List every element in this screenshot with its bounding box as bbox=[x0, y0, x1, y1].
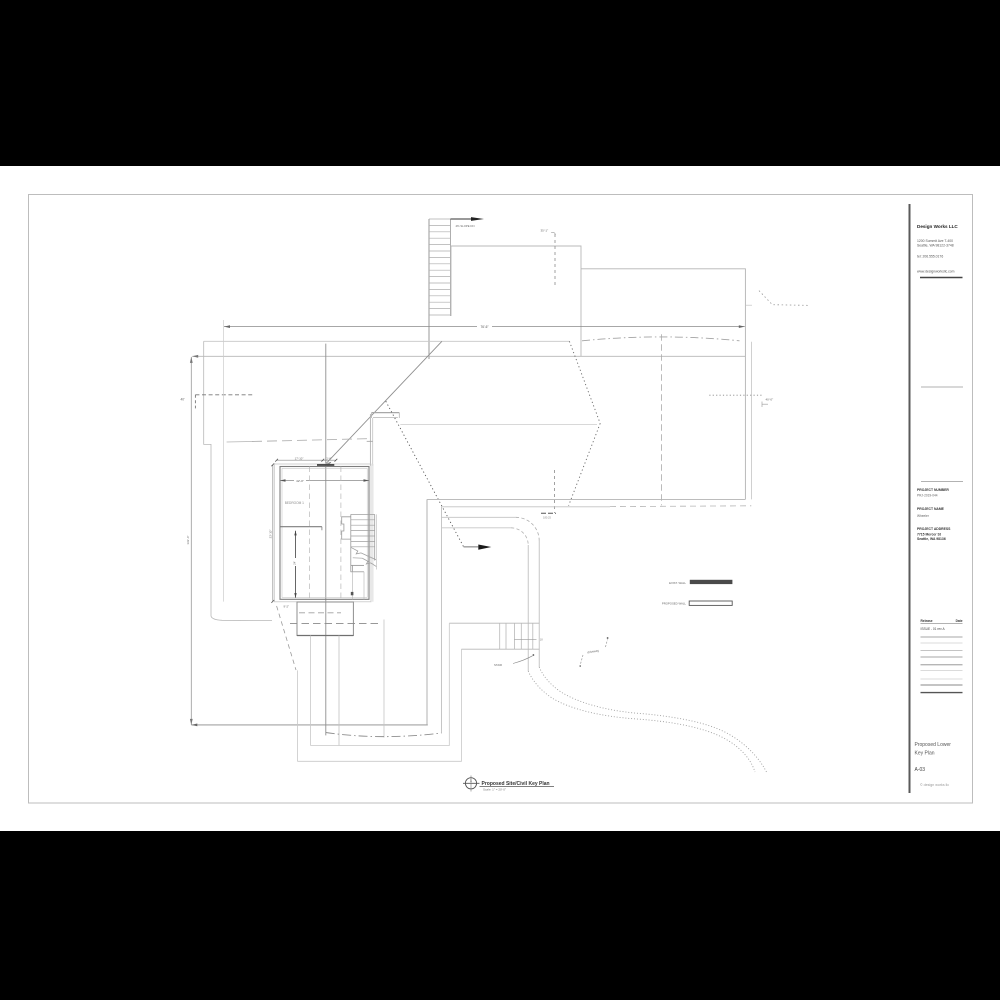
svg-text:33'-10": 33'-10" bbox=[269, 530, 273, 539]
svg-text:PROJECT ADDRESS: PROJECT ADDRESS bbox=[917, 527, 951, 531]
svg-text:Wheeler: Wheeler bbox=[917, 514, 930, 518]
svg-text:76'-6": 76'-6" bbox=[480, 325, 488, 329]
svg-text:PROPOSED WALL: PROPOSED WALL bbox=[662, 602, 687, 606]
svg-text:1'-6": 1'-6" bbox=[326, 456, 332, 460]
svg-text:1200 Summit Ave T-400: 1200 Summit Ave T-400 bbox=[917, 239, 953, 243]
svg-text:A-03: A-03 bbox=[915, 767, 926, 773]
svg-text:Seattle, WA 98136: Seattle, WA 98136 bbox=[917, 537, 946, 541]
svg-text:35'-1": 35'-1" bbox=[541, 229, 549, 233]
svg-text:Seattle, WA 98122-3748: Seattle, WA 98122-3748 bbox=[917, 244, 954, 248]
svg-text:9'-2": 9'-2" bbox=[284, 604, 290, 608]
svg-text:© design works llc: © design works llc bbox=[920, 783, 949, 787]
svg-text:Scale: 1" = 20'-0": Scale: 1" = 20'-0" bbox=[483, 788, 506, 792]
svg-text:Release: Release bbox=[921, 619, 933, 623]
svg-text:Proposed Lower: Proposed Lower bbox=[915, 742, 952, 748]
svg-text:180.25: 180.25 bbox=[543, 516, 551, 520]
svg-text:EXIST. WALL: EXIST. WALL bbox=[669, 581, 686, 585]
svg-text:4% SLOPE DN: 4% SLOPE DN bbox=[456, 224, 475, 228]
svg-text:24': 24' bbox=[293, 561, 297, 565]
svg-text:17'-10": 17'-10" bbox=[295, 456, 304, 460]
svg-text:www.designworksllc.com: www.designworksllc.com bbox=[917, 270, 955, 274]
svg-text:STAIR: STAIR bbox=[494, 663, 502, 667]
svg-text:PROJECT NUMBER: PROJECT NUMBER bbox=[917, 488, 949, 492]
svg-text:7715 Mercer St: 7715 Mercer St bbox=[917, 533, 942, 537]
svg-text:ISSUE - 01 rev A: ISSUE - 01 rev A bbox=[921, 627, 946, 631]
svg-text:133'-4": 133'-4" bbox=[186, 535, 190, 544]
svg-text:Date: Date bbox=[956, 619, 963, 623]
svg-text:PROJECT NAME: PROJECT NAME bbox=[917, 507, 945, 511]
svg-text:1: 1 bbox=[470, 779, 472, 783]
svg-text:40': 40' bbox=[181, 398, 186, 402]
svg-text:Design Works LLC: Design Works LLC bbox=[917, 224, 958, 229]
svg-text:PRJ-2019-044: PRJ-2019-044 bbox=[917, 494, 938, 498]
svg-text:42'-0": 42'-0" bbox=[296, 479, 304, 483]
svg-text:tel: 206.555.0176: tel: 206.555.0176 bbox=[917, 255, 943, 259]
svg-text:BEDROOM 1: BEDROOM 1 bbox=[285, 501, 304, 505]
svg-text:40'-0": 40'-0" bbox=[766, 398, 774, 402]
svg-text:Key Plan: Key Plan bbox=[915, 751, 935, 757]
